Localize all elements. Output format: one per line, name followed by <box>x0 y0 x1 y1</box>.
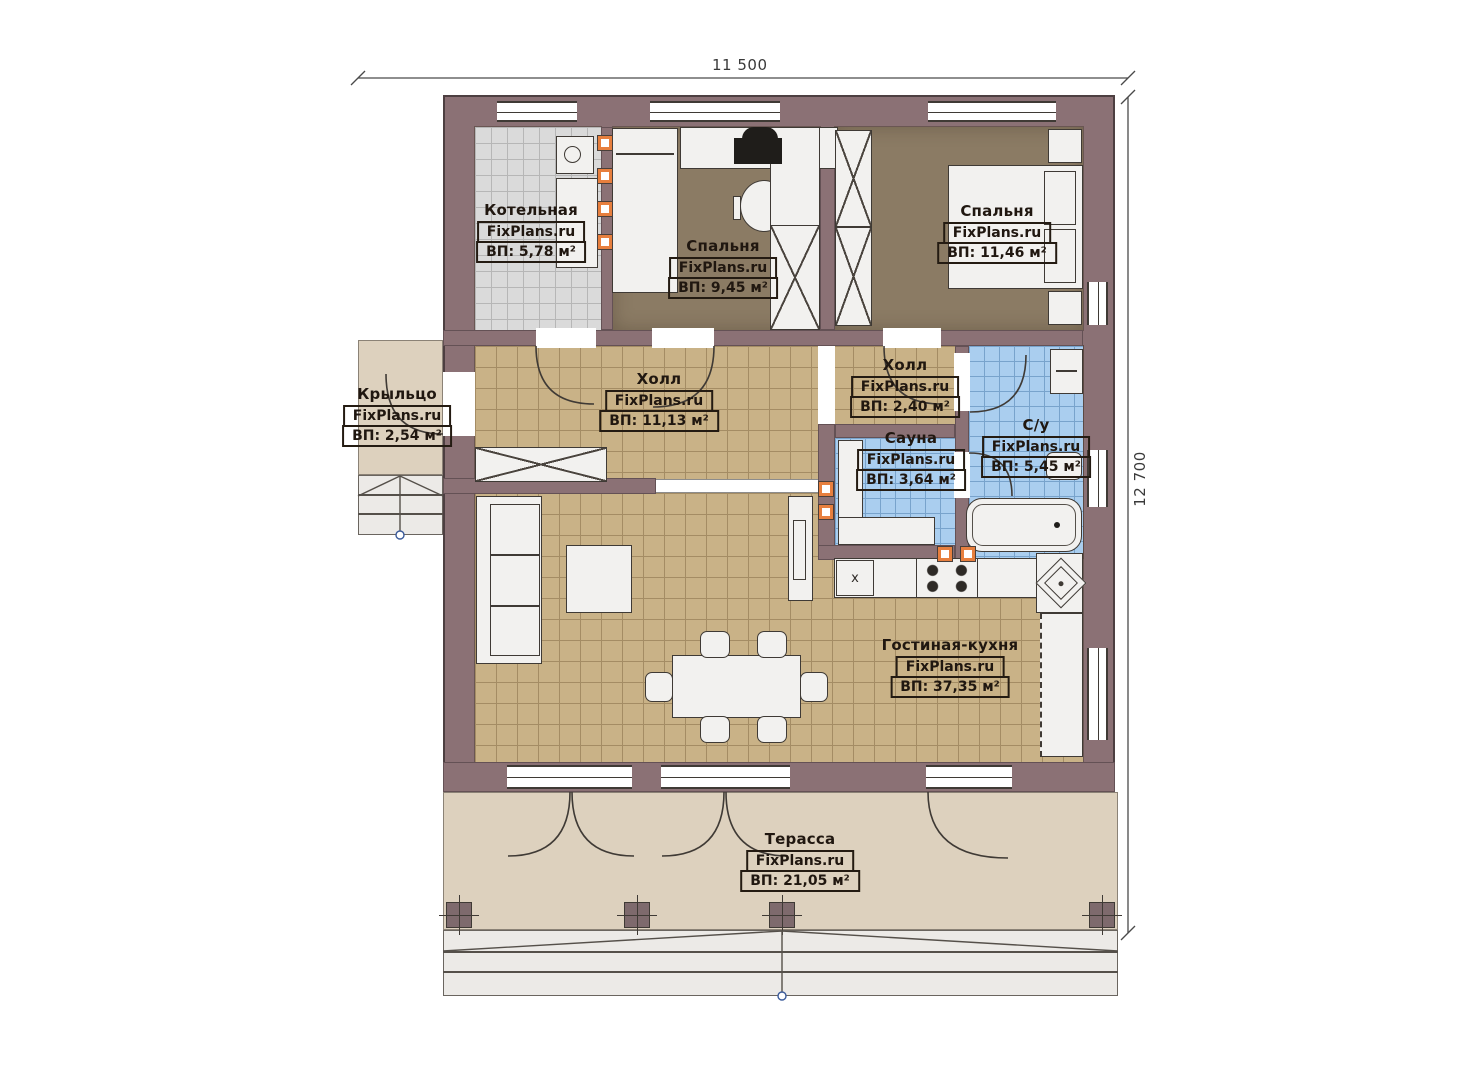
room-area: ВП: 21,05 м² <box>740 870 860 892</box>
terrace-column <box>769 902 795 928</box>
room-name: Холл <box>599 371 719 388</box>
hall-wardrobe <box>475 447 607 482</box>
desk-lamp <box>742 127 778 139</box>
brand-watermark: FixPlans.ru <box>896 656 1004 678</box>
brand-watermark: FixPlans.ru <box>343 405 451 427</box>
bedroom2-wardrobe <box>835 227 872 326</box>
room-name: Сауна <box>856 430 966 447</box>
room-label-bedroom1: Спальня FixPlans.ru ВП: 9,45 м² <box>668 238 778 299</box>
radiator-marker <box>960 546 976 562</box>
dimension-tick <box>1121 926 1135 940</box>
terrace-column <box>1089 902 1115 928</box>
stove <box>916 558 978 598</box>
dimension-tick <box>351 71 365 85</box>
brand-watermark: FixPlans.ru <box>669 257 777 279</box>
room-label-sauna: Сауна FixPlans.ru ВП: 3,64 м² <box>856 430 966 491</box>
brand-watermark: FixPlans.ru <box>857 449 965 471</box>
brand-watermark: FixPlans.ru <box>746 850 854 872</box>
tv <box>793 520 806 580</box>
room-name: Крыльцо <box>342 386 452 403</box>
chair-armrest <box>733 196 741 220</box>
bathtub-drain <box>1054 522 1060 528</box>
room-label-bathroom: С/у FixPlans.ru ВП: 5,45 м² <box>981 417 1091 478</box>
room-label-living: Гостиная-кухня FixPlans.ru ВП: 37,35 м² <box>882 637 1019 698</box>
laptop <box>734 138 782 164</box>
dimension-width-label: 11 500 <box>712 56 768 74</box>
washbasin <box>1050 349 1083 394</box>
terrace-door-right <box>926 765 1012 789</box>
room-label-terrace: Терасса FixPlans.ru ВП: 21,05 м² <box>740 831 860 892</box>
dining-chair <box>645 672 673 702</box>
dimension-height-label: 12 700 <box>1131 451 1149 507</box>
terrace-step-line <box>443 971 1118 973</box>
nightstand <box>1048 129 1082 163</box>
nightstand <box>1048 291 1082 325</box>
kitchen-counter-right <box>1040 613 1083 757</box>
radiator-marker <box>597 234 613 250</box>
room-label-bedroom2: Спальня FixPlans.ru ВП: 11,46 м² <box>937 203 1057 264</box>
door-opening-bedroom2 <box>883 328 941 348</box>
sofa-cushion-line <box>490 605 540 607</box>
room-label-boiler: Котельная FixPlans.ru ВП: 5,78 м² <box>476 202 586 263</box>
room-area: ВП: 2,54 м² <box>342 425 452 447</box>
coffee-table <box>566 545 632 613</box>
terrace-door-center <box>661 765 790 789</box>
room-area: ВП: 9,45 м² <box>668 277 778 299</box>
room-name: Спальня <box>668 238 778 255</box>
bathtub <box>966 498 1082 552</box>
brand-watermark: FixPlans.ru <box>477 221 585 243</box>
fridge-marker-box: x <box>836 560 874 596</box>
room-area: ВП: 11,46 м² <box>937 242 1057 264</box>
radiator-marker <box>597 168 613 184</box>
sofa-seat <box>490 504 540 656</box>
door-opening-boiler <box>536 328 596 348</box>
radiator-marker <box>597 201 613 217</box>
dimension-tick <box>1121 90 1135 104</box>
room-name: Терасса <box>740 831 860 848</box>
room-label-porch: Крыльцо FixPlans.ru ВП: 2,54 м² <box>342 386 452 447</box>
brand-watermark: FixPlans.ru <box>982 436 1090 458</box>
room-label-hall-small: Холл FixPlans.ru ВП: 2,40 м² <box>850 357 960 418</box>
brand-watermark: FixPlans.ru <box>851 376 959 398</box>
dining-chair <box>700 631 730 658</box>
opening-hall-living <box>656 479 818 493</box>
porch-steps <box>358 475 443 535</box>
window-bedroom1 <box>650 101 780 122</box>
brand-watermark: FixPlans.ru <box>943 222 1051 244</box>
washing-machine-door <box>564 146 581 163</box>
radiator-marker <box>818 504 834 520</box>
room-label-hall-main: Холл FixPlans.ru ВП: 11,13 м² <box>599 371 719 432</box>
door-opening-bedroom1 <box>652 328 714 348</box>
porch-step-line <box>358 494 443 496</box>
window-boiler <box>497 101 577 122</box>
room-area: ВП: 37,35 м² <box>890 676 1010 698</box>
sofa-cushion-line <box>490 554 540 556</box>
terrace-column <box>624 902 650 928</box>
terrace-step-line <box>443 951 1118 953</box>
radiator-marker <box>597 135 613 151</box>
room-name: Гостиная-кухня <box>882 637 1019 654</box>
dining-chair <box>757 716 787 743</box>
brand-watermark: FixPlans.ru <box>605 390 713 412</box>
terrace-steps <box>443 930 1118 996</box>
bedroom2-wardrobe <box>835 130 872 227</box>
sauna-bench-horizontal <box>838 517 935 545</box>
dining-table <box>672 655 801 718</box>
radiator-marker <box>937 546 953 562</box>
terrace-door-left <box>507 765 632 789</box>
room-area: ВП: 5,45 м² <box>981 456 1091 478</box>
window-kitchen <box>1087 648 1108 740</box>
bed-pillow-line <box>616 153 674 155</box>
dining-chair <box>800 672 828 702</box>
room-area: ВП: 11,13 м² <box>599 410 719 432</box>
window-bedroom2-side <box>1087 282 1108 325</box>
dimension-tick <box>1121 71 1135 85</box>
room-area: ВП: 2,40 м² <box>850 396 960 418</box>
terrace-column <box>446 902 472 928</box>
washbasin-line <box>1056 370 1077 372</box>
room-area: ВП: 5,78 м² <box>476 241 586 263</box>
window-bedroom2 <box>928 101 1056 122</box>
porch-step-line <box>358 513 443 515</box>
room-name: Холл <box>850 357 960 374</box>
radiator-marker <box>818 481 834 497</box>
dining-chair <box>700 716 730 743</box>
room-name: Котельная <box>476 202 586 219</box>
fridge-marker-label: x <box>851 571 859 586</box>
floor-plan-canvas: x <box>0 0 1473 1080</box>
room-name: Спальня <box>937 203 1057 220</box>
passage-hall-hall2 <box>818 346 835 424</box>
room-area: ВП: 3,64 м² <box>856 469 966 491</box>
dining-chair <box>757 631 787 658</box>
room-name: С/у <box>981 417 1091 434</box>
